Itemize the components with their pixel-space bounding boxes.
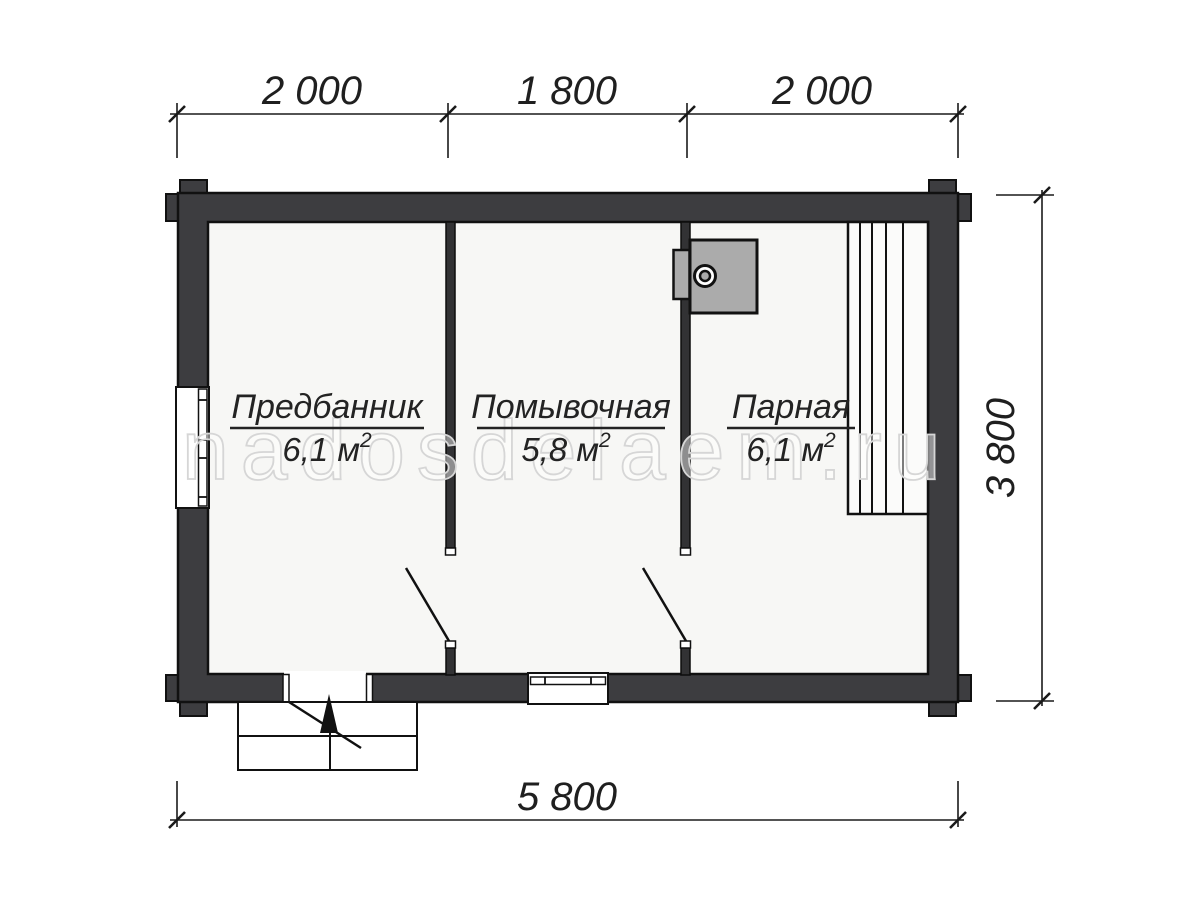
window-bottom-sash	[531, 677, 606, 685]
dim-value-top-1: 2 000	[261, 69, 362, 113]
stove-ring-inner	[700, 271, 710, 281]
entrance-jamb-left	[283, 675, 289, 703]
dim-value-top-3: 2 000	[771, 69, 872, 113]
partition-1-upper	[446, 222, 455, 548]
floor-plan-canvas: nadosdelaem.ru Предбанник 6,1 м2 Помывоч…	[0, 0, 1200, 900]
stove-firebox	[674, 250, 690, 299]
partition-1-cap-top	[446, 548, 456, 555]
floor-plan-page: nadosdelaem.ru Предбанник 6,1 м2 Помывоч…	[0, 0, 1200, 900]
room-area: 5,8 м2	[521, 429, 611, 468]
partition-1-cap-bottom	[446, 641, 456, 648]
partition-2-lower	[681, 648, 690, 675]
partition-2-cap-bottom	[681, 641, 691, 648]
partition-2-cap-top	[681, 548, 691, 555]
room-name: Предбанник	[231, 388, 424, 426]
dim-value-right: 3 800	[979, 398, 1023, 498]
room-area: 6,1 м2	[746, 429, 836, 468]
entrance-jamb-right	[367, 675, 373, 703]
dim-value-top-2: 1 800	[517, 69, 617, 113]
entrance-opening	[284, 671, 366, 705]
room-area: 6,1 м2	[282, 429, 372, 468]
partition-1-lower	[446, 648, 455, 675]
dim-value-bottom: 5 800	[517, 775, 617, 819]
room-name: Парная	[732, 388, 850, 426]
room-name: Помывочная	[471, 388, 671, 426]
